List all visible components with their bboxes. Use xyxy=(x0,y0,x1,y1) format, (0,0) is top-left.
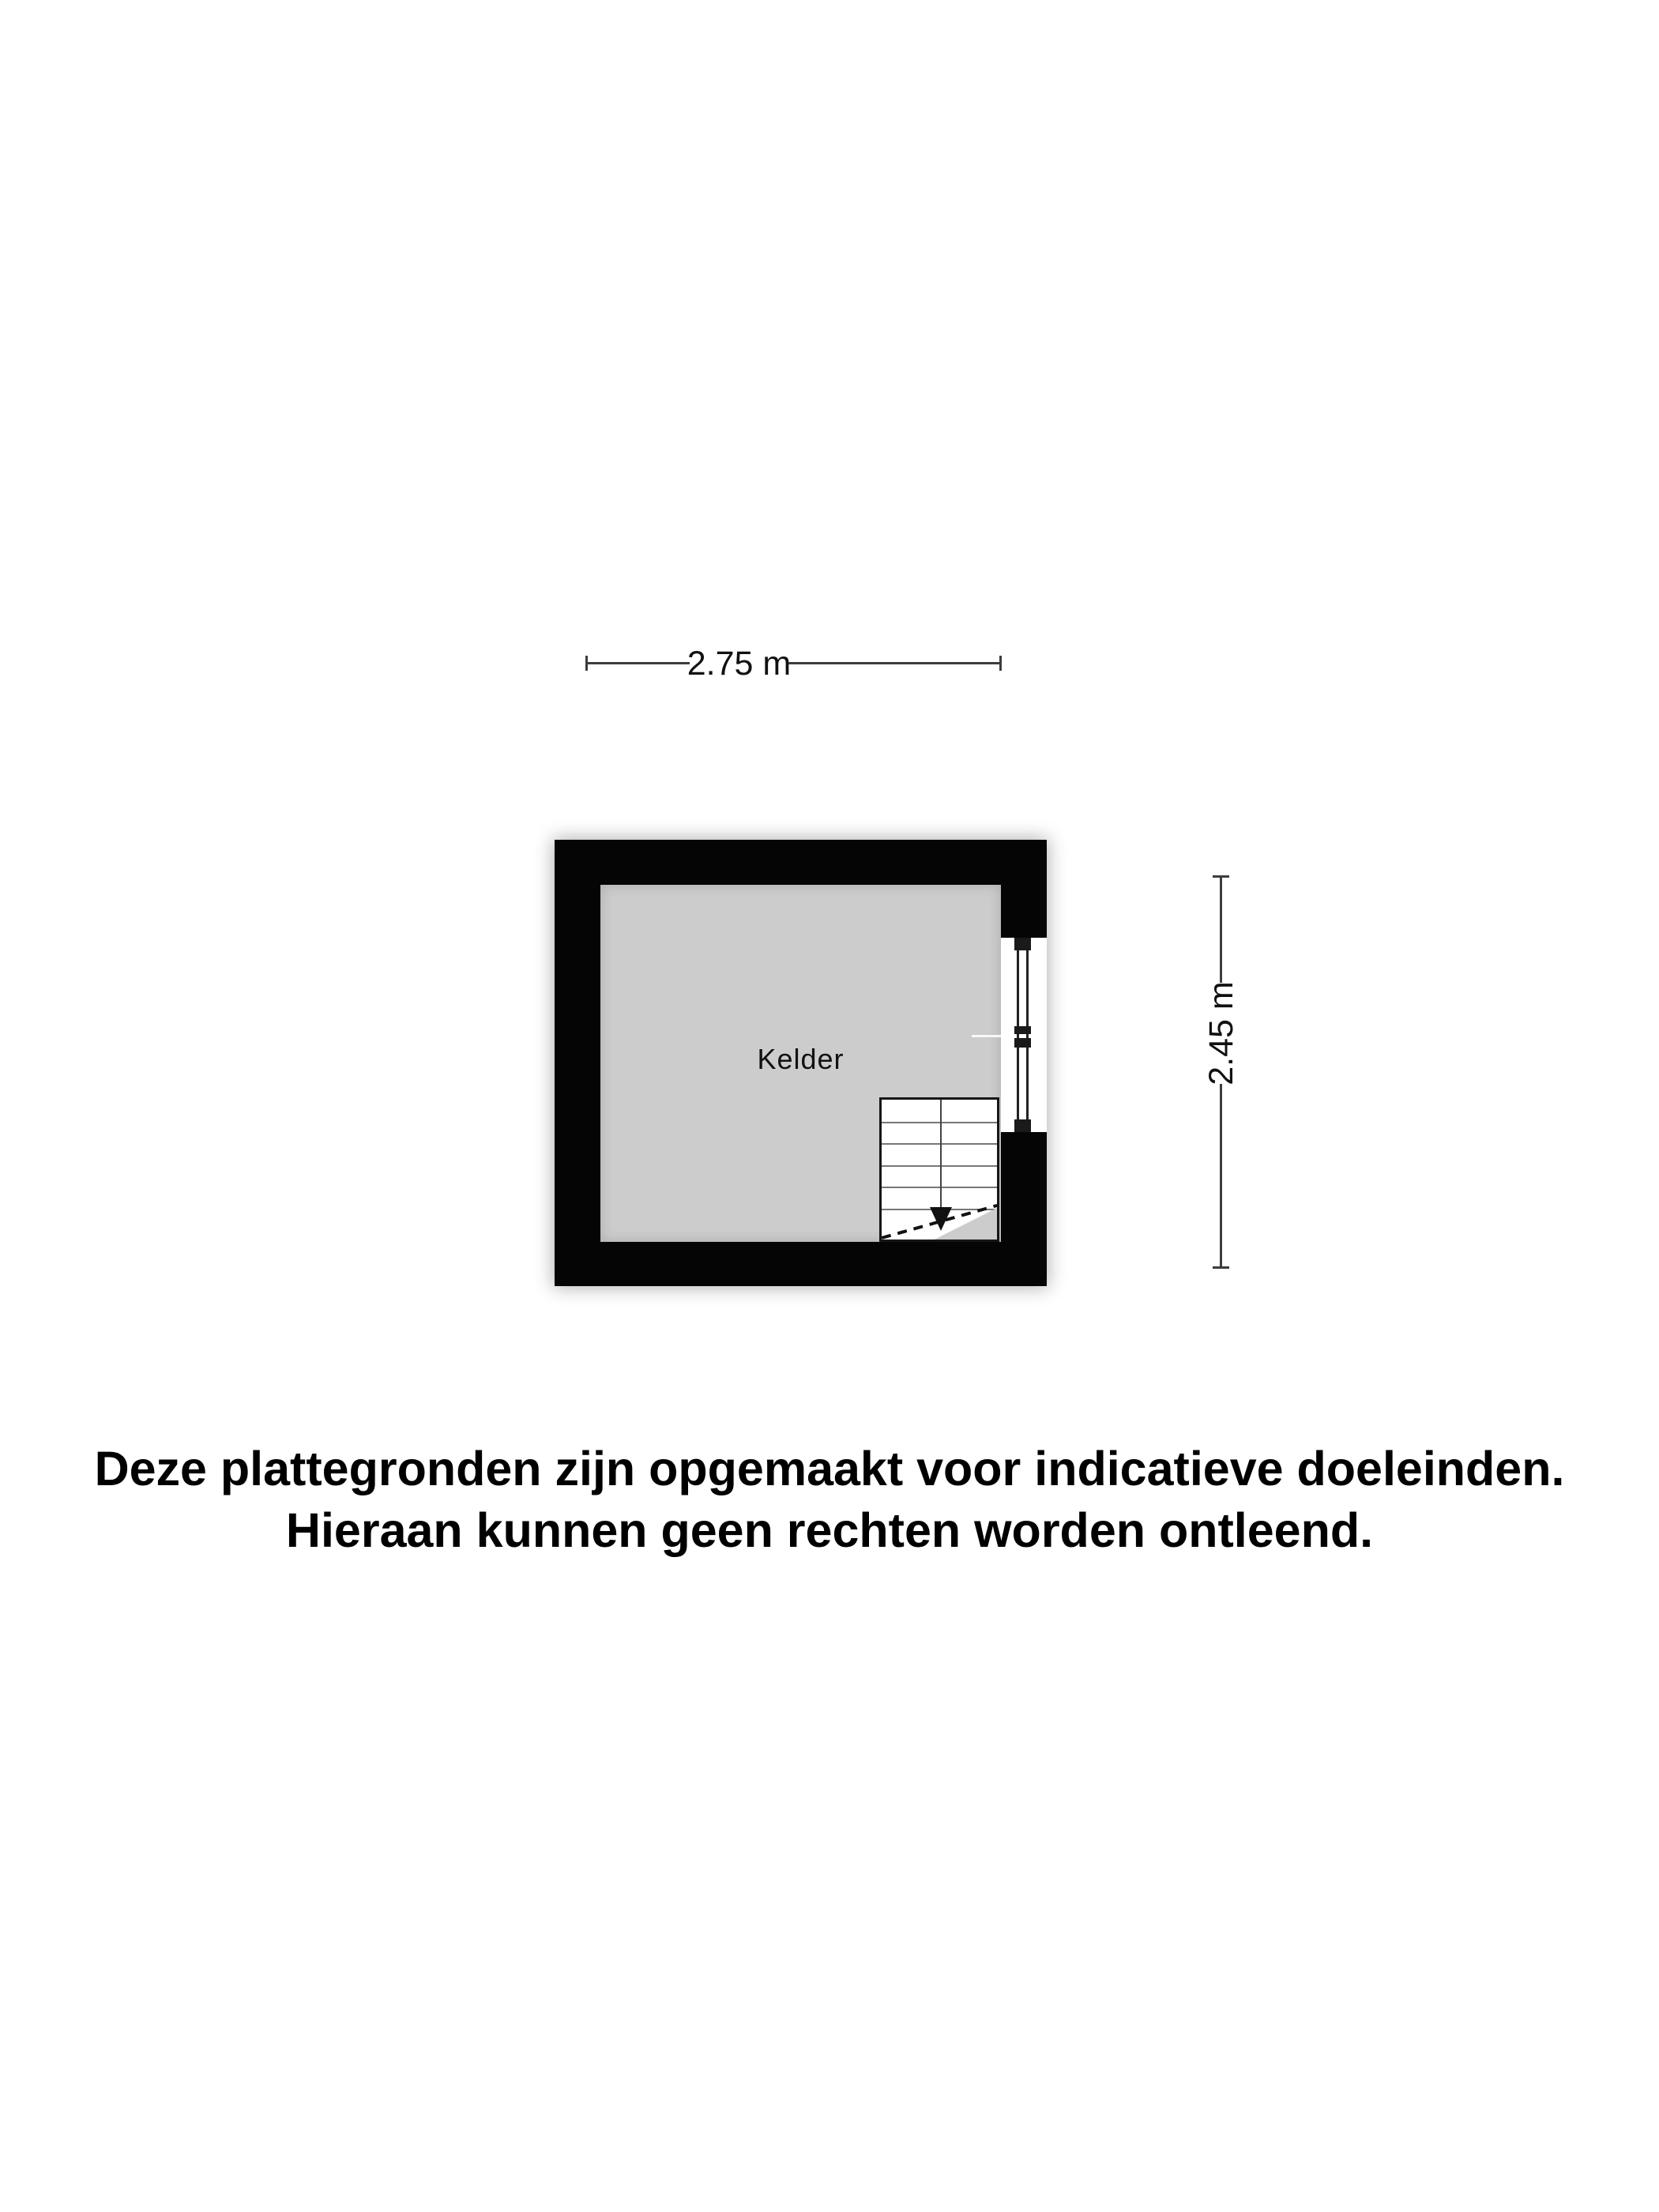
dimension-line-right-segment xyxy=(788,662,1001,664)
disclaimer-line-1: Deze plattegronden zijn opgemaakt voor i… xyxy=(0,1438,1659,1499)
stair-tread xyxy=(882,1122,997,1123)
dimension-line-bottom-segment xyxy=(1220,1084,1222,1267)
window-frame-block xyxy=(1014,938,1031,950)
basement-walls: Kelder xyxy=(555,840,1047,1286)
window-icon xyxy=(1001,938,1047,1132)
window-frame-block xyxy=(1014,1026,1031,1034)
dimension-line-left-segment xyxy=(587,662,690,664)
dimension-tick-bottom xyxy=(1213,1266,1229,1269)
window-glazing xyxy=(1017,938,1029,1132)
stair-tread xyxy=(882,1143,997,1145)
stair-tread xyxy=(882,1187,997,1188)
height-dimension-label: 2.45 m xyxy=(1203,966,1240,1100)
disclaimer-text: Deze plattegronden zijn opgemaakt voor i… xyxy=(0,1438,1659,1561)
disclaimer-line-2: Hieraan kunnen geen rechten worden ontle… xyxy=(0,1499,1659,1561)
stair-walk-line xyxy=(940,1100,942,1207)
floorplan-page: 2.75 m Kelder 2.45 m xyxy=(0,0,1659,2212)
room-label: Kelder xyxy=(600,1042,1001,1077)
window-frame-block xyxy=(1014,1119,1031,1132)
window-sill-line xyxy=(972,1035,1001,1037)
width-dimension-label: 2.75 m xyxy=(678,645,800,682)
staircase-icon xyxy=(879,1097,999,1242)
stair-tread xyxy=(882,1165,997,1167)
window-frame-block xyxy=(1014,1038,1031,1048)
dimension-tick-right xyxy=(999,656,1002,671)
